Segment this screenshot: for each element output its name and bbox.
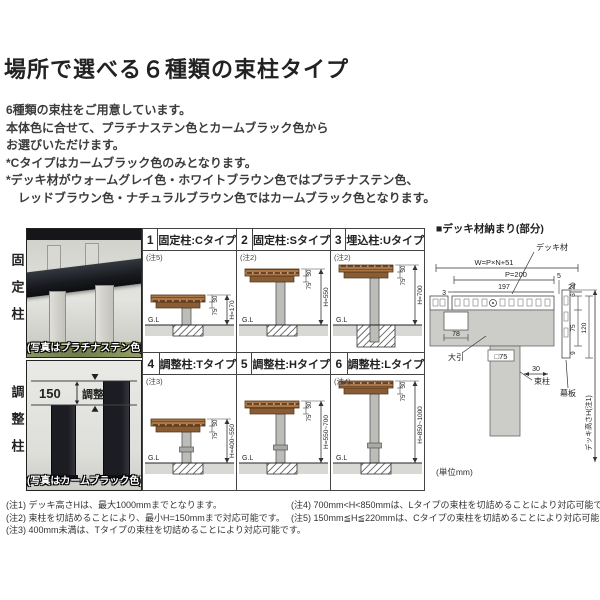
deck-board: [151, 419, 205, 426]
cell-note: (注2): [334, 252, 351, 263]
dim-joist: 75: [401, 278, 407, 285]
unit-note: (単位mm): [436, 466, 473, 478]
footnotes-left: (注1) デッキ高さHは、最大1000mmまでとなります。 (注2) 束柱を切詰…: [6, 499, 306, 537]
cell-header: 6 調整柱:Lタイプ: [331, 353, 424, 375]
gl-label: G.L: [148, 317, 159, 324]
cell-title: 埋込柱:Uタイプ: [346, 229, 424, 250]
cell-header: 5 調整柱:Hタイプ: [237, 353, 330, 375]
joist: [156, 302, 200, 308]
cell-diagram-area: (注4) 30 75 H=850~1000 G.L: [331, 375, 424, 488]
section-diagram: 30 75 H=400~550 G.L: [143, 375, 236, 488]
cell-header: 1 固定柱:Cタイプ: [143, 229, 236, 251]
footnote: (注1) デッキ高さHは、最大1000mmまでとなります。: [6, 499, 306, 512]
adjuster-joint: [180, 447, 194, 452]
dim-board: 30: [213, 419, 219, 426]
joist: [250, 408, 294, 414]
cell-header: 4 調整柱:Tタイプ: [143, 353, 236, 375]
post: [182, 308, 191, 325]
cell-number: 6: [331, 353, 348, 374]
cell-title: 調整柱:Tタイプ: [160, 353, 236, 374]
catalog-page: 場所で選べる６種類の束柱タイプ 6種類の束柱をご用意しています。 本体色に合せて…: [0, 0, 600, 600]
cell-diagram-area: (注3) 30 75 H=400~550 G.L: [143, 375, 236, 488]
deck-material-label: デッキ材: [536, 242, 568, 252]
adjust-post-photo-block: 調整柱 150 調整 (写真はカームブラック色): [8, 360, 142, 491]
cell-note: (注4): [334, 376, 351, 387]
deck-detail-diagram: デッキ材 W=P×N+51 P=200 5 3 197 27: [428, 238, 598, 466]
cell-title: 固定柱:Sタイプ: [253, 229, 330, 250]
up-arrow-icon: [92, 406, 99, 412]
cell-title: 固定柱:Cタイプ: [158, 229, 236, 250]
cell-number: 1: [143, 229, 158, 250]
adjust-label: 調整: [82, 387, 104, 401]
footnote: (注2) 束柱を切詰めることにより、最小H=150mmまで対応可能です。: [6, 512, 306, 525]
gl-label: G.L: [148, 455, 159, 462]
post-type-cell-6: 6 調整柱:Lタイプ (注4) 30 75 H=850~10: [330, 352, 425, 491]
pitch-dim: P=200: [505, 270, 527, 279]
dim-board: 30: [401, 381, 407, 388]
deck-board: [245, 401, 299, 408]
dim-height: H=400~550: [229, 424, 236, 458]
cell-note: (注5): [146, 252, 163, 263]
dim-board: 30: [307, 401, 313, 408]
beam-bracket: [444, 312, 468, 330]
photo-deck-edge: [27, 229, 141, 240]
dim-197: 197: [498, 284, 510, 291]
photo-caption: (写真はプラチナステン色): [27, 339, 141, 354]
cell-number: 2: [237, 229, 253, 250]
post: [370, 278, 379, 342]
cell-diagram-area: (注5) 30 75 H=170 G.L: [143, 251, 236, 351]
joist: [156, 426, 200, 432]
joist: [344, 272, 388, 278]
post-type-cell-5: 5 調整柱:Hタイプ 30 75 H=550~700: [236, 352, 331, 491]
dim-joist: 75: [213, 432, 219, 439]
photo-front-post: [95, 285, 114, 343]
dim-height: H=550~700: [323, 415, 330, 449]
intro-line: *デッキ材がウォームグレイ色・ホワイトブラウン色ではプラチナステン色、: [6, 172, 435, 190]
dim-30-top: 30: [570, 282, 577, 290]
dim-height: H=550: [323, 287, 330, 307]
dim-board: 30: [401, 265, 407, 272]
cell-number: 5: [237, 353, 252, 374]
gl-label: G.L: [242, 455, 253, 462]
dim-joist: 75: [307, 282, 313, 289]
cell-diagram-area: (注2) 30 75 H=700 G.L: [331, 251, 424, 351]
joist: [344, 388, 388, 394]
gl-label: G.L: [336, 455, 347, 462]
cell-diagram-area: (注2) 30 75 H=550 G.L: [237, 251, 330, 351]
down-arrow-icon: [92, 374, 99, 380]
cell-diagram-area: 30 75 H=550~700 G.L: [237, 375, 330, 488]
photo-deck-beam: [26, 256, 142, 299]
footnotes-right: (注4) 700mm<H<850mmは、Lタイプの束柱を切詰めることにより対応可…: [291, 499, 600, 524]
cell-note: (注2): [240, 252, 257, 263]
footnote: (注3) 400mm未満は、Tタイプの束柱を切詰めることにより対応可能です。: [6, 524, 306, 537]
up-arrow-icon: [75, 382, 79, 386]
foundation: [361, 463, 391, 474]
adjuster-joint: [368, 443, 382, 448]
cell-title: 調整柱:Hタイプ: [252, 353, 330, 374]
fixed-post-side-label: 固定柱: [8, 228, 26, 358]
dim-120: 120: [581, 322, 588, 333]
post-label: 束柱: [534, 376, 550, 386]
intro-line: 6種類の束柱をご用意しています。: [6, 102, 435, 120]
cell-header: 2 固定柱:Sタイプ: [237, 229, 330, 251]
photo-front-post: [49, 291, 66, 343]
deck-board: [151, 295, 205, 302]
fixed-post-photo: (写真はプラチナステン色): [26, 228, 142, 358]
deck-board: [339, 265, 393, 272]
section-diagram: 30 75 H=550 G.L: [237, 251, 330, 351]
adjust-post-photo: 150 調整 (写真はカームブラック色): [26, 360, 142, 491]
deck-height-label: デッキ高さH(注1): [584, 395, 593, 451]
intro-line: *Cタイプはカームブラック色のみとなります。: [6, 155, 435, 173]
dim-30-bottom: 30: [532, 366, 540, 373]
post-type-cell-4: 4 調整柱:Tタイプ (注3) 30 75 H=400~55: [142, 352, 237, 491]
dim-6: 6: [570, 293, 577, 297]
cell-title: 調整柱:Lタイプ: [348, 353, 424, 374]
intro-line: レッドブラウン色・ナチュラルブラウン色ではカームブラック色となります。: [6, 190, 435, 208]
cell-number: 4: [143, 353, 160, 374]
post: [276, 414, 285, 463]
joist: [250, 276, 294, 282]
dim-height: H=700: [417, 285, 424, 305]
post-type-cell-2: 2 固定柱:Sタイプ (注2) 30 75 H=550 G.L: [236, 228, 331, 353]
deck-board: [245, 269, 299, 276]
section-diagram: 30 75 H=850~1000 G.L: [331, 375, 424, 488]
gl-label: G.L: [242, 317, 253, 324]
dim-75: 75: [570, 324, 577, 332]
dim-9: 9: [570, 351, 577, 355]
dim-height: H=170: [229, 300, 236, 320]
dim-height: H=850~1000: [417, 406, 424, 444]
dim-joist: 75: [213, 308, 219, 315]
dim-board: 30: [307, 269, 313, 276]
adjust-annotation: 150 調整: [27, 371, 141, 417]
cell-header: 3 埋込柱:Uタイプ: [331, 229, 424, 251]
section-diagram: 30 75 H=170 G.L: [143, 251, 236, 351]
dim-joist: 75: [307, 414, 313, 421]
dim-joist: 75: [401, 394, 407, 401]
post: [370, 394, 379, 463]
post: [276, 282, 285, 325]
cell-number: 3: [331, 229, 346, 250]
adjust-range-value: 150: [39, 386, 61, 401]
detail-section-header: ■デッキ材納まり(部分): [436, 221, 544, 236]
post-size-label: □75: [495, 352, 508, 361]
foundation: [267, 325, 297, 336]
beam-label: 大引: [448, 352, 464, 362]
intro-text: 6種類の束柱をご用意しています。 本体色に合せて、プラチナステン色とカームブラッ…: [6, 102, 435, 207]
cell-note: (注3): [146, 376, 163, 387]
fixed-post-photo-block: 固定柱 (写真はプラチナステン色): [8, 228, 142, 358]
down-arrow-icon: [75, 401, 79, 405]
foundation: [173, 463, 203, 474]
post-type-cell-3: 3 埋込柱:Uタイプ (注2) 30 75 H=700 G.L: [330, 228, 425, 353]
fascia-label: 幕板: [560, 388, 576, 398]
gap-dim: 5: [557, 273, 561, 280]
foundation: [267, 463, 297, 474]
adjuster-joint: [274, 445, 288, 450]
foundation: [173, 325, 203, 336]
footnote: (注4) 700mm<H<850mmは、Lタイプの束柱を切詰めることにより対応可…: [291, 499, 600, 512]
photo-caption: (写真はカームブラック色): [27, 472, 141, 487]
intro-line: お選びいただけます。: [6, 137, 435, 155]
page-title: 場所で選べる６種類の束柱タイプ: [4, 52, 349, 84]
adjust-post-side-label: 調整柱: [8, 360, 26, 491]
post-type-cell-1: 1 固定柱:Cタイプ (注5) 30 75 H=170 G.L: [142, 228, 237, 353]
section-diagram: 30 75 H=550~700 G.L: [237, 375, 330, 488]
width-formula: W=P×N+51: [475, 258, 514, 267]
intro-line: 本体色に合せて、プラチナステン色とカームブラック色から: [6, 120, 435, 138]
dim-board: 30: [213, 295, 219, 302]
footnote: (注5) 150mm≦H≦220mmは、Cタイプの束柱を切詰めることにより対応可…: [291, 512, 600, 525]
section-diagram: 30 75 H=700 G.L: [331, 251, 424, 351]
dim-78: 78: [452, 331, 460, 338]
gl-label: G.L: [336, 317, 347, 324]
